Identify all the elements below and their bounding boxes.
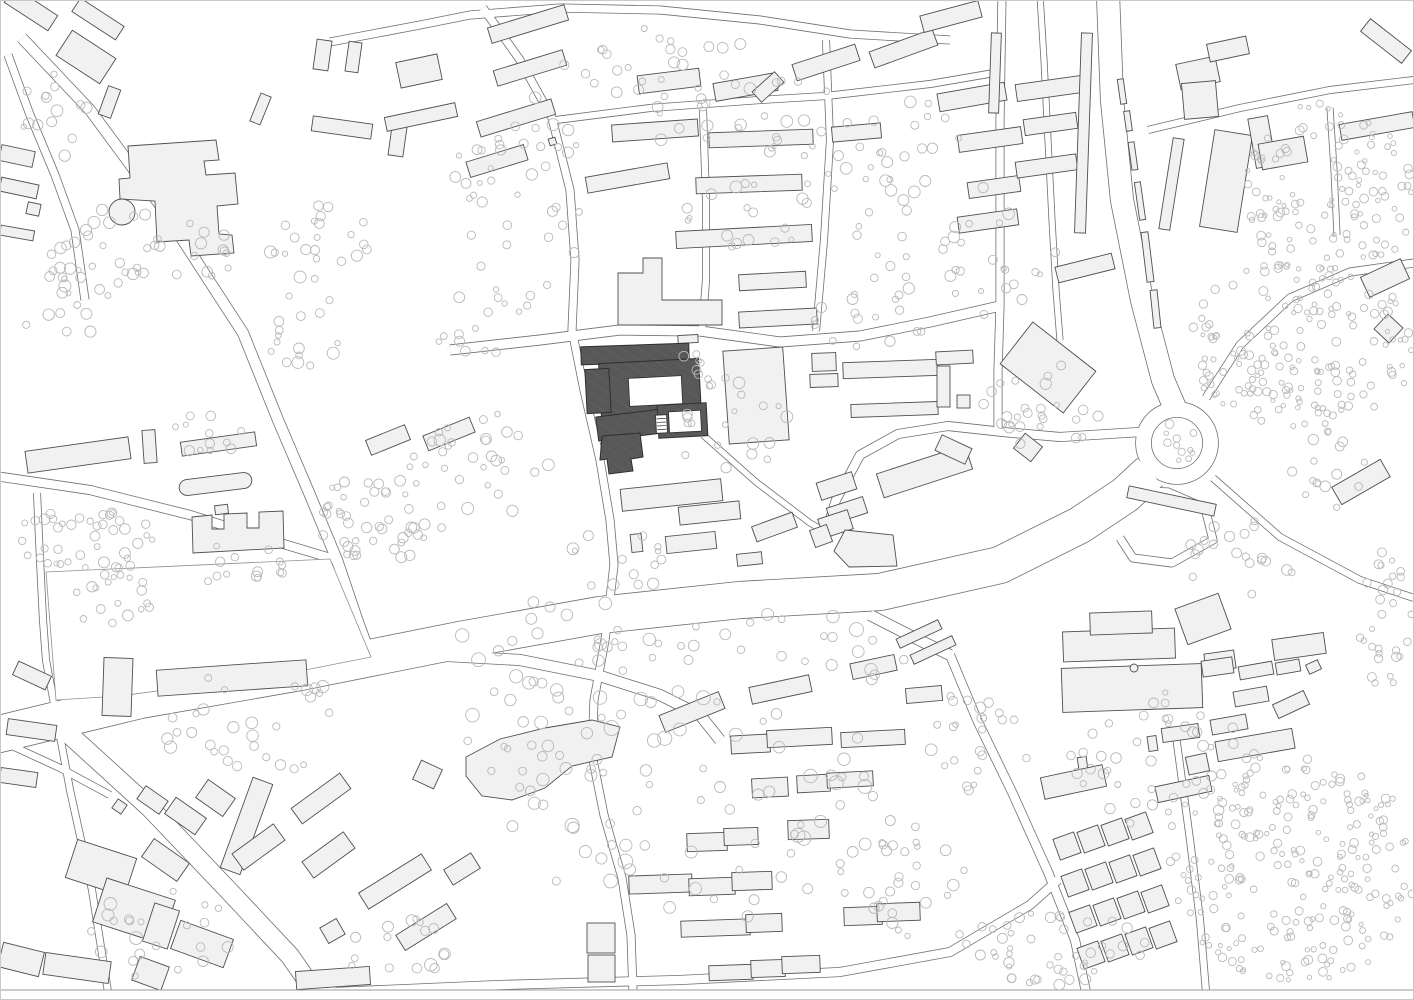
building: [724, 827, 759, 845]
building: [752, 777, 789, 798]
map-content: [0, 0, 1414, 1000]
building: [810, 374, 838, 388]
building: [588, 955, 615, 982]
building: [102, 658, 133, 717]
entrance-steps: [656, 415, 668, 434]
courtyard: [628, 376, 682, 407]
building: [587, 923, 615, 953]
building: [731, 734, 771, 754]
building: [957, 395, 970, 408]
avenue-pavilion: [834, 530, 897, 567]
building: [732, 871, 773, 890]
building: [751, 959, 786, 977]
round-building: [109, 199, 135, 225]
building: [936, 350, 974, 365]
building: [905, 685, 942, 703]
site-building-wing: [585, 368, 611, 413]
building: [678, 334, 698, 343]
building: [681, 919, 751, 937]
building: [723, 347, 789, 444]
building: [767, 727, 833, 747]
round-building: [1130, 664, 1138, 672]
building: [782, 955, 821, 973]
building: [689, 877, 736, 896]
building: [709, 129, 813, 148]
building: [687, 832, 728, 851]
school-e-building: [192, 511, 284, 553]
building: [736, 552, 762, 567]
building: [843, 359, 939, 378]
building: [709, 964, 753, 981]
building: [746, 913, 783, 932]
building: [1090, 611, 1153, 635]
building: [630, 533, 643, 552]
site-plan-page: [0, 0, 1414, 1000]
building: [797, 774, 831, 793]
building: [26, 202, 41, 216]
building: [937, 366, 950, 407]
building: [812, 353, 837, 372]
building: [841, 729, 906, 747]
building: [1147, 735, 1158, 751]
building: [851, 401, 938, 417]
building: [739, 271, 807, 290]
site-plan-drawing: [0, 0, 1414, 1000]
building: [1181, 81, 1218, 120]
building: [142, 430, 157, 464]
building: [1185, 753, 1209, 775]
building: [215, 504, 229, 515]
